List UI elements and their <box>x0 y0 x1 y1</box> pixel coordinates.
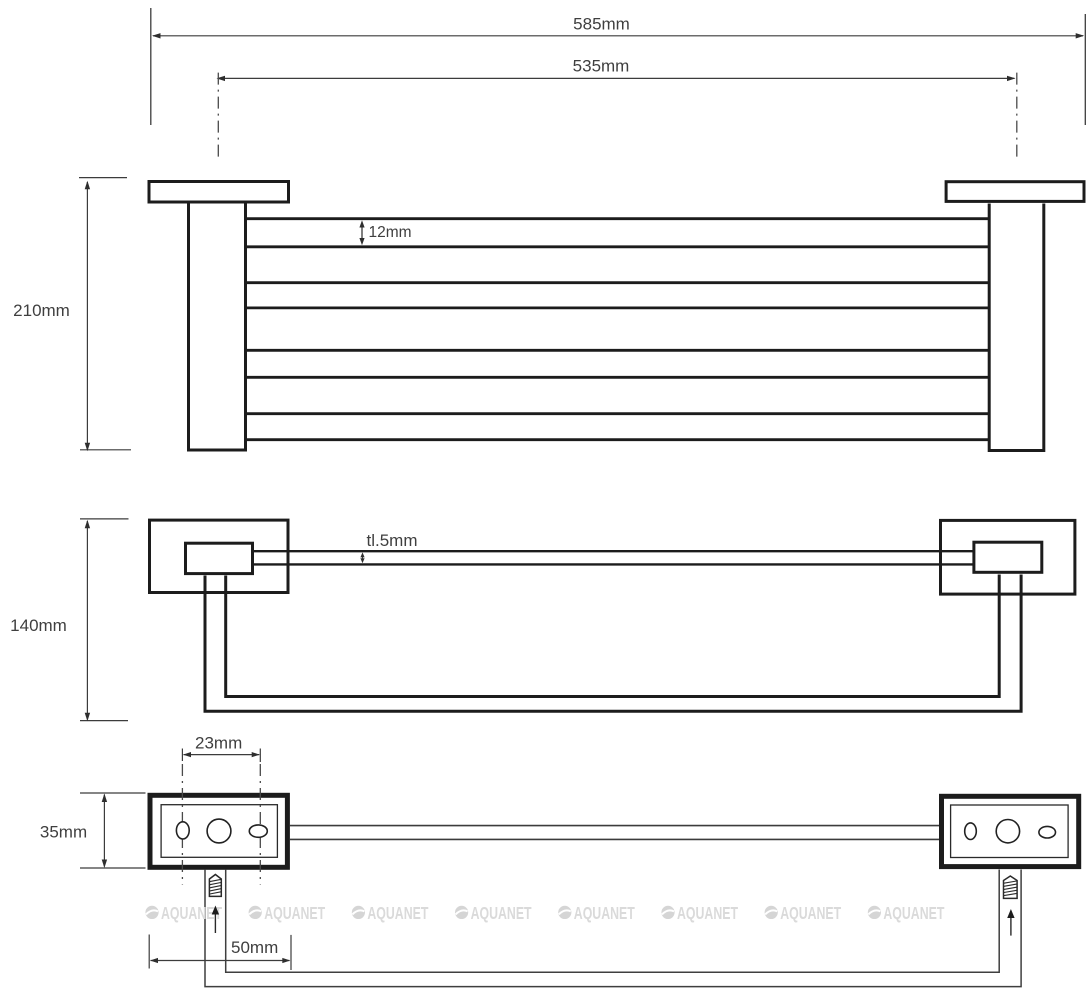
svg-text:210mm: 210mm <box>13 301 70 320</box>
svg-text:AQUANET: AQUANET <box>367 903 428 923</box>
svg-text:23mm: 23mm <box>195 734 242 753</box>
svg-text:AQUANET: AQUANET <box>264 903 325 923</box>
svg-text:AQUANET: AQUANET <box>883 903 944 923</box>
svg-text:140mm: 140mm <box>10 616 67 635</box>
svg-text:50mm: 50mm <box>231 938 278 957</box>
svg-text:AQUANET: AQUANET <box>471 903 532 923</box>
svg-text:AQUANET: AQUANET <box>780 903 841 923</box>
svg-text:AQUANET: AQUANET <box>677 903 738 923</box>
svg-text:AQUANET: AQUANET <box>574 903 635 923</box>
svg-text:585mm: 585mm <box>573 15 630 34</box>
svg-text:12mm: 12mm <box>369 224 412 241</box>
svg-text:35mm: 35mm <box>40 823 87 842</box>
svg-text:tl.5mm: tl.5mm <box>367 531 418 550</box>
svg-text:535mm: 535mm <box>573 57 630 76</box>
